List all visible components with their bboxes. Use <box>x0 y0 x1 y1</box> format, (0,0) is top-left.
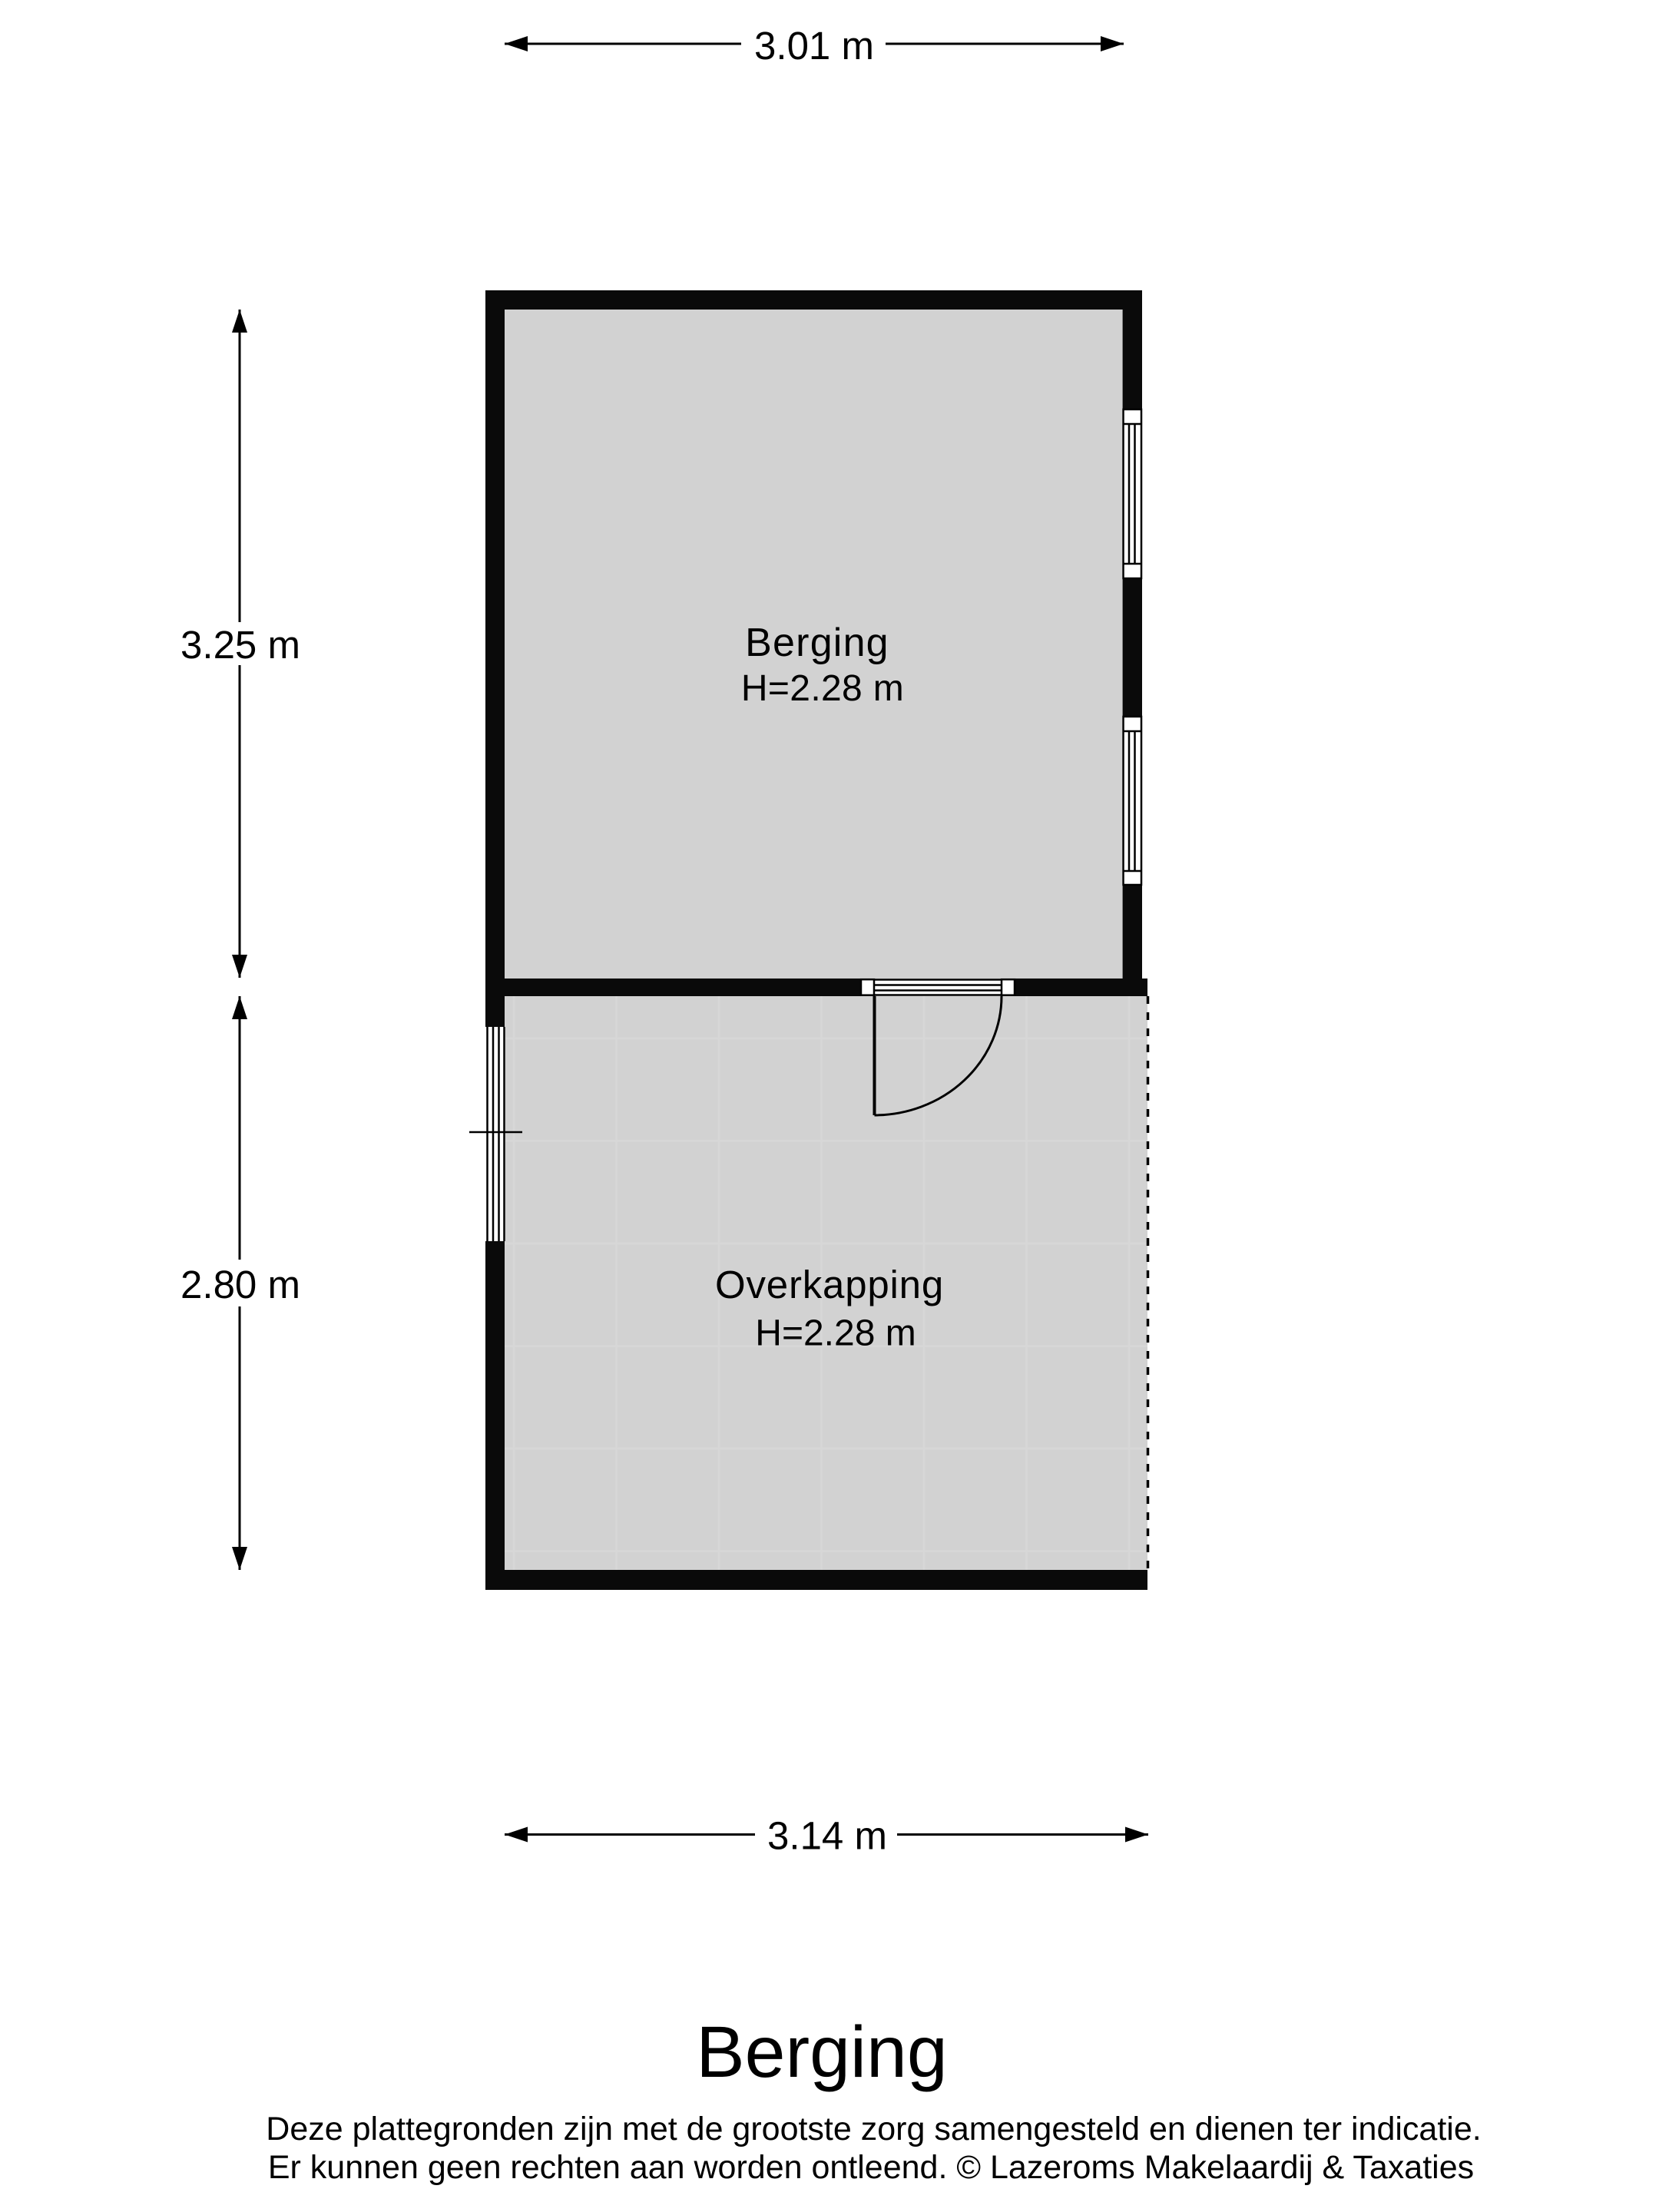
svg-text:Berging: Berging <box>696 2012 947 2093</box>
svg-text:3.01 m: 3.01 m <box>754 24 874 68</box>
svg-text:Overkapping: Overkapping <box>715 1263 944 1306</box>
svg-text:Deze plattegronden zijn met de: Deze plattegronden zijn met de grootste … <box>266 2111 1481 2147</box>
svg-text:3.25 m: 3.25 m <box>180 623 300 667</box>
svg-text:Er kunnen geen rechten aan wor: Er kunnen geen rechten aan worden ontlee… <box>268 2149 1474 2186</box>
svg-text:2.80 m: 2.80 m <box>180 1263 300 1306</box>
svg-text:3.14 m: 3.14 m <box>767 1814 887 1858</box>
svg-text:Berging: Berging <box>745 621 889 665</box>
svg-text:H=2.28 m: H=2.28 m <box>755 1313 916 1354</box>
svg-text:H=2.28 m: H=2.28 m <box>741 668 904 709</box>
